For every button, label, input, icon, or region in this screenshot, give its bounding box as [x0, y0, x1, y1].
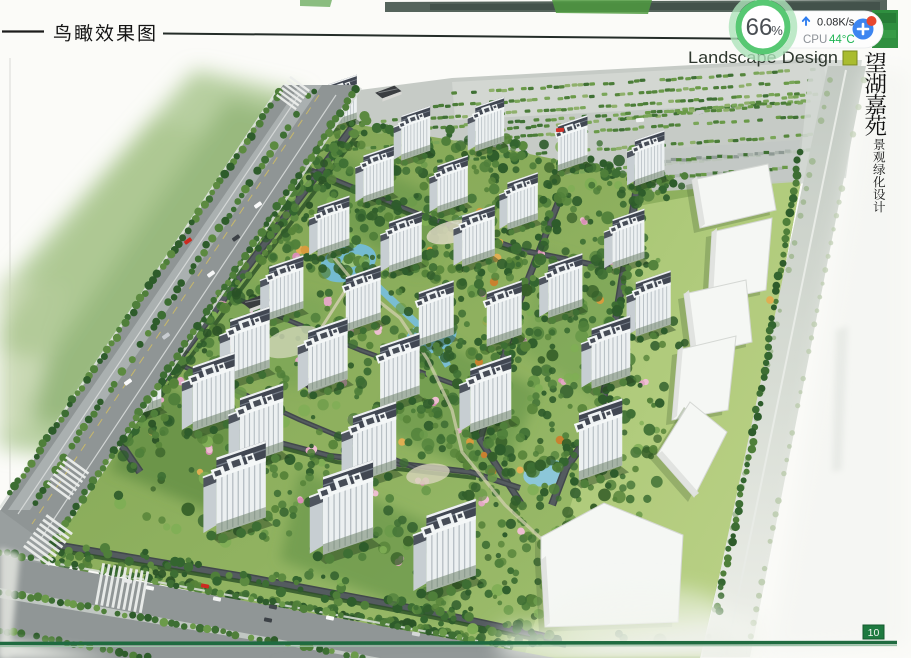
svg-text:66: 66 [746, 14, 773, 41]
svg-text:%: % [771, 23, 783, 38]
svg-text:0.08K/s: 0.08K/s [817, 17, 855, 29]
svg-text:44°C: 44°C [829, 34, 855, 46]
svg-text:10: 10 [868, 627, 880, 639]
svg-text:CPU: CPU [803, 34, 827, 46]
